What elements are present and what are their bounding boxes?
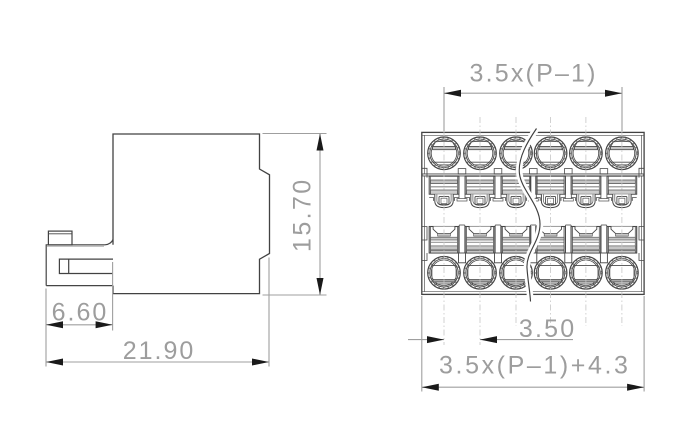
svg-text:6.60: 6.60 <box>52 299 109 327</box>
svg-text:3.5x(P–1)+4.3: 3.5x(P–1)+4.3 <box>439 352 631 380</box>
svg-text:15.70: 15.70 <box>289 177 317 252</box>
svg-text:3.50: 3.50 <box>519 315 576 343</box>
svg-text:3.5x(P–1): 3.5x(P–1) <box>470 60 598 88</box>
svg-text:21.90: 21.90 <box>123 337 196 365</box>
